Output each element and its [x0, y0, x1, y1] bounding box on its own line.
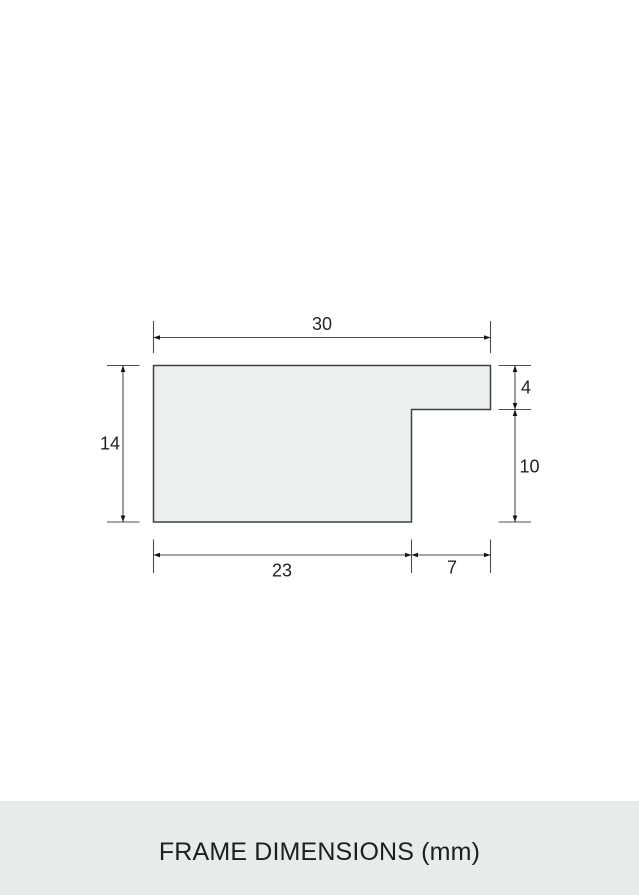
- svg-text:4: 4: [521, 378, 531, 398]
- svg-text:7: 7: [447, 558, 457, 578]
- svg-text:10: 10: [519, 457, 539, 477]
- svg-text:23: 23: [272, 561, 292, 581]
- svg-text:14: 14: [100, 434, 120, 454]
- svg-text:30: 30: [312, 314, 332, 334]
